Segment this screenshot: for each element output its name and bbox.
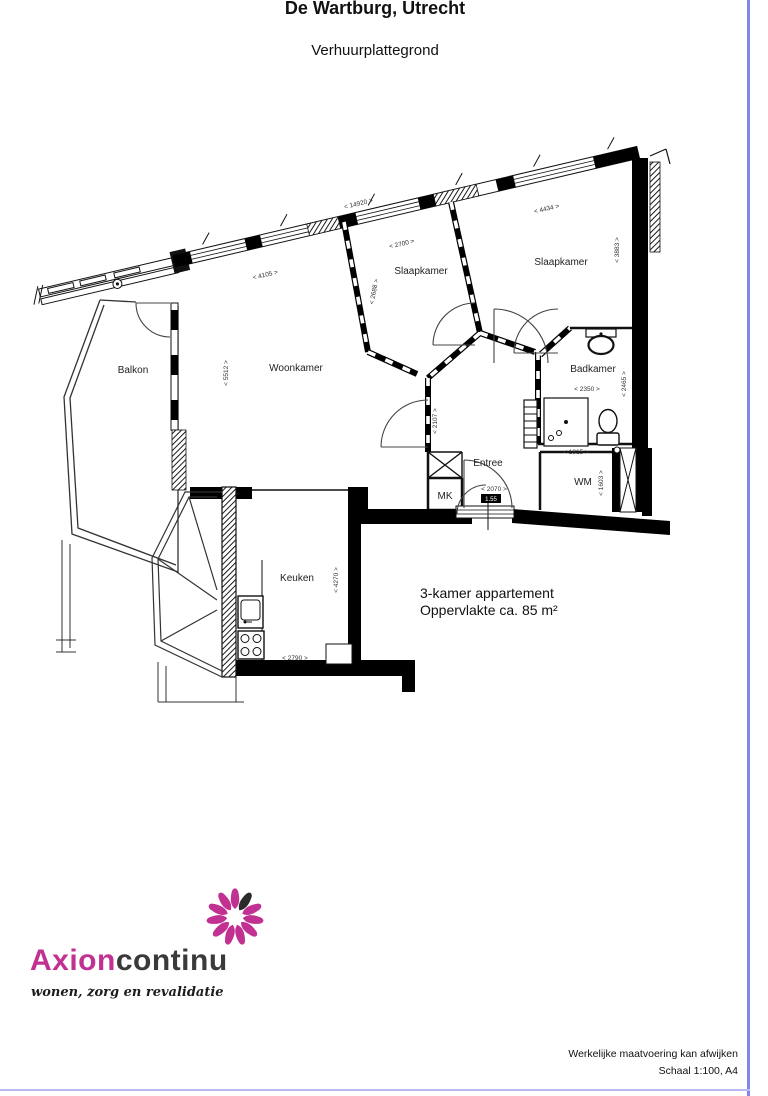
footer-notes: Werkelijke maatvoering kan afwijken Scha…: [568, 1046, 738, 1080]
room-label-woonkamer: Woonkamer: [269, 363, 323, 374]
dimension-label: < 1815 >: [563, 449, 589, 456]
dimension-label: < 1603 >: [598, 470, 605, 496]
door-number-tag: 1.55: [485, 497, 497, 503]
flower-petals: [206, 888, 264, 945]
front-door-threshold: 1.55: [456, 494, 514, 530]
room-label-wm: WM: [574, 477, 592, 488]
footer-scale: Schaal 1:100, A4: [568, 1063, 738, 1080]
dimension-label: < 2070 >: [481, 486, 507, 493]
dimension-label: < 2700 >: [389, 238, 416, 251]
document-page: De Wartburg, Utrecht Verhuurplattegrond: [0, 0, 768, 1096]
logo-brand-primary: Axion: [30, 944, 116, 977]
kitchen-fixtures: [238, 560, 264, 660]
dimension-label: < 2350 >: [574, 386, 600, 393]
balcony-outline: [64, 300, 178, 572]
dimension-label: < 4434 >: [533, 203, 560, 216]
apartment-description: 3-kamer appartement Oppervlakte ca. 85 m…: [420, 585, 558, 619]
room-label-badkamer: Badkamer: [570, 364, 616, 375]
room-label-slaapkamer-1: Slaapkamer: [394, 266, 448, 277]
dimension-label: < 4270 >: [333, 567, 340, 593]
kitchen-bay-window: [152, 487, 236, 677]
dimension-label: < 2107 >: [432, 408, 439, 434]
context-outlines: [56, 540, 244, 702]
logo-flower-icon: [204, 886, 266, 948]
room-label-entree: Entree: [473, 458, 503, 469]
apartment-area: Oppervlakte ca. 85 m²: [420, 602, 558, 619]
axioncontinu-logo: Axioncontinu wonen, zorg en revalidatie: [30, 884, 270, 1014]
dimension-label: < 2790 >: [282, 655, 308, 662]
logo-brand-secondary: continu: [116, 944, 228, 977]
room-label-keuken: Keuken: [280, 573, 314, 584]
footer-disclaimer: Werkelijke maatvoering kan afwijken: [568, 1046, 738, 1063]
room-label-slaapkamer-2: Slaapkamer: [534, 257, 588, 268]
page-border-bottom: [0, 1089, 750, 1091]
logo-wordmark: Axioncontinu: [30, 944, 228, 978]
east-wall: [632, 149, 670, 456]
facade-wall: < 14920 > < 4105 > < 2700 > < 4434 >: [27, 133, 647, 333]
dimension-label: < 5512 >: [223, 360, 230, 386]
logo-tagline: wonen, zorg en revalidatie: [31, 985, 224, 1000]
apartment-type: 3-kamer appartement: [420, 585, 558, 602]
room-label-mk: MK: [438, 491, 453, 502]
dimension-label: < 2688 >: [369, 278, 381, 305]
balcony-window-wall: [171, 303, 186, 490]
page-border-right: [747, 0, 750, 1096]
doors: [136, 303, 558, 514]
dimension-label: < 4105 >: [252, 269, 279, 282]
dimension-label: < 3883 >: [614, 237, 621, 263]
room-label-balkon: Balkon: [118, 365, 149, 376]
radiator: [524, 400, 537, 448]
dimension-label: < 2465 >: [621, 371, 628, 397]
shaft: [612, 447, 642, 512]
